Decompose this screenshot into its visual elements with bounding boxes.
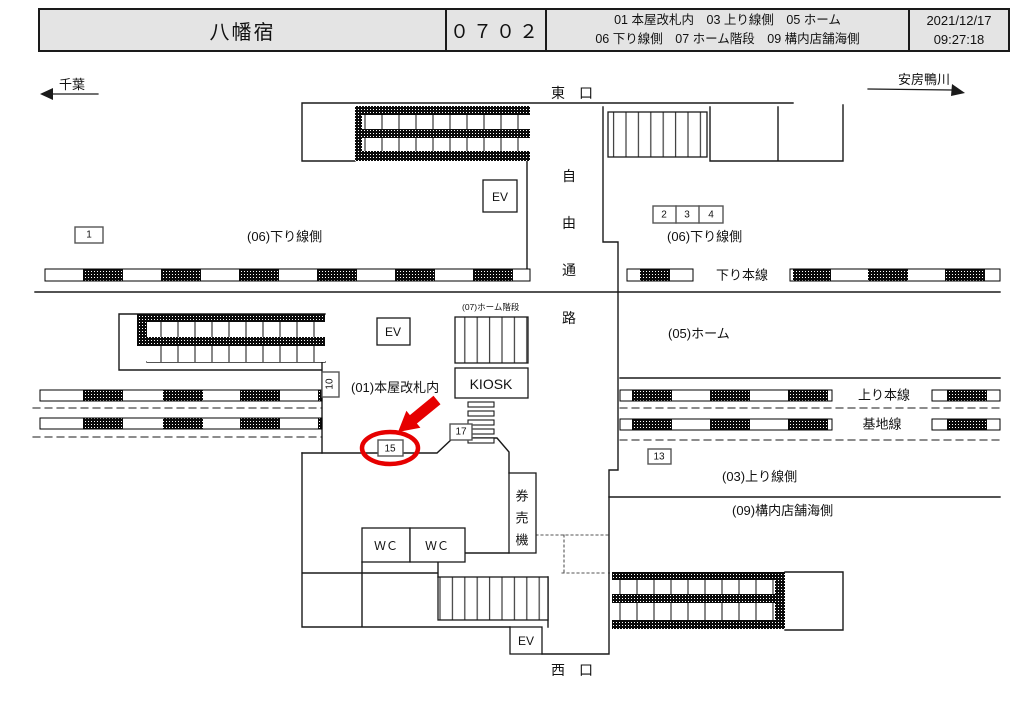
- svg-text:券: 券: [515, 489, 528, 504]
- position-3-label: 3: [684, 210, 690, 221]
- label-down-side-left: (06)下り線側: [247, 229, 322, 244]
- arrowhead-right-icon: [951, 84, 965, 96]
- category-legend-line2: 06 下り線側 07 ホーム階段 09 構内店舗海側: [595, 30, 859, 49]
- label-down-main-line: 下り本線: [716, 268, 768, 283]
- svg-text:通: 通: [562, 262, 576, 278]
- svg-text:機: 機: [515, 533, 528, 548]
- arrowhead-left-icon: [40, 88, 53, 100]
- stairway-west: [438, 577, 548, 620]
- train-code: ０７０２: [445, 10, 545, 50]
- position-2-label: 2: [661, 210, 667, 221]
- label-shop-sea-side: (09)構内店舗海側: [732, 503, 833, 518]
- wc-label-1: ＷＣ: [374, 539, 398, 553]
- svg-text:路: 路: [562, 310, 576, 326]
- free-passage-label: 自 由 通 路: [562, 168, 576, 326]
- svg-text:売: 売: [515, 511, 528, 526]
- category-legend-line1: 01 本屋改札内 03 上り線側 05 ホーム: [614, 11, 841, 30]
- header-bar: 八幡宿 ０７０２ 01 本屋改札内 03 上り線側 05 ホーム 06 下り線側…: [38, 8, 1010, 52]
- stairway-platform-left: [137, 314, 325, 362]
- direction-left-label: 千葉: [59, 77, 85, 92]
- svg-text:由: 由: [562, 215, 576, 231]
- position-4-label: 4: [708, 210, 714, 221]
- label-up-main-line: 上り本線: [858, 388, 910, 403]
- label-platform: (05)ホーム: [668, 326, 730, 341]
- station-diagram: 千葉 安房鴨川 東 口 西 口 自 由 通 路: [0, 0, 1024, 724]
- stairway-south-east: [612, 572, 785, 629]
- direction-arrow-right: 安房鴨川: [868, 72, 965, 96]
- station-name: 八幡宿: [40, 10, 445, 50]
- elevator-east-label: EV: [492, 190, 508, 204]
- label-platform-stairs: (07)ホーム階段: [462, 302, 520, 312]
- position-1-label: 1: [86, 230, 92, 241]
- date-label: 2021/12/17: [926, 11, 991, 31]
- label-up-side: (03)上り線側: [722, 469, 797, 484]
- west-exit-label: 西 口: [551, 662, 593, 678]
- stairway-kiosk: [455, 317, 528, 363]
- east-exit-label: 東 口: [551, 85, 593, 101]
- station-map-page: 八幡宿 ０７０２ 01 本屋改札内 03 上り線側 05 ホーム 06 下り線側…: [0, 0, 1024, 724]
- kiosk-label: KIOSK: [470, 376, 513, 392]
- svg-text:自: 自: [562, 168, 576, 184]
- wc-label-2: ＷＣ: [425, 539, 449, 553]
- highlight-arrow-icon: [398, 396, 441, 432]
- position-10-label: 10: [325, 378, 336, 390]
- stairway-east: [608, 112, 707, 157]
- position-15-label: 15: [384, 444, 396, 455]
- label-base-line: 基地線: [862, 417, 901, 432]
- stairway-top-left: [355, 106, 530, 161]
- position-17-label: 17: [455, 427, 467, 438]
- label-down-side-right: (06)下り線側: [667, 229, 742, 244]
- ticket-machine-label: 券 売 機: [515, 489, 528, 548]
- elevator-west-label: EV: [518, 634, 534, 648]
- position-13-label: 13: [653, 452, 665, 463]
- time-label: 09:27:18: [934, 30, 985, 50]
- datetime: 2021/12/17 09:27:18: [908, 10, 1008, 50]
- direction-arrow-left: 千葉: [40, 77, 98, 100]
- direction-right-label: 安房鴨川: [898, 72, 950, 87]
- dotted-boundary: [536, 535, 609, 573]
- label-main-gate: (01)本屋改札内: [351, 380, 439, 395]
- category-legend: 01 本屋改札内 03 上り線側 05 ホーム 06 下り線側 07 ホーム階段…: [545, 10, 908, 50]
- elevator-gate-label: EV: [385, 325, 401, 339]
